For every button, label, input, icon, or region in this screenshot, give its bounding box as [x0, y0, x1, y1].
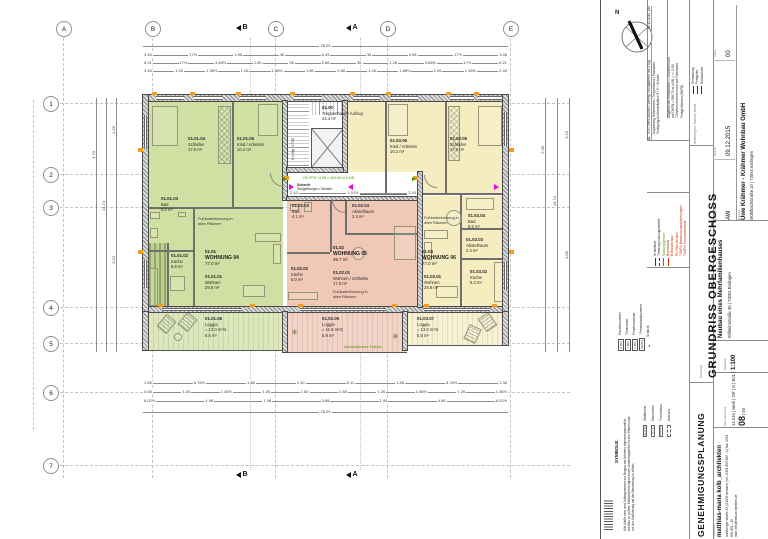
symbol-tag: F B01	[632, 339, 638, 351]
dim-value: 14.74	[102, 200, 106, 212]
wall	[403, 312, 407, 350]
dim-symbol	[693, 86, 694, 94]
window	[240, 96, 266, 101]
scale-label: Maßstab	[723, 358, 727, 370]
room-label-kind-06: 01.03.06Kind / Arbeiten10.2 m²	[390, 138, 417, 155]
axis-label-3: 3	[43, 200, 59, 216]
axis-label-2: 2	[43, 167, 59, 183]
dim-line	[106, 98, 107, 352]
dim-row: 4.081.261.38½1.261.802.881.261.88½1.261.…	[143, 392, 508, 394]
dim-row: 6.02½4.981.985.881.984.986.02½	[143, 401, 508, 403]
architect-address: radeberger straße 43 | 01099 dresden | t…	[725, 429, 733, 537]
dim-row: 3.481.261.38½1.261.88½1.802.881.261.88½1…	[143, 71, 508, 73]
window	[478, 96, 502, 101]
bed	[478, 106, 502, 146]
partition	[345, 200, 347, 235]
partition	[167, 243, 169, 307]
section-marker-a-bottom: A	[346, 471, 358, 478]
dim-value: 3.23	[112, 255, 116, 265]
apartment-label-04: 01.01WOHNUNG 0477.0 m²	[205, 249, 239, 267]
sink	[178, 212, 186, 217]
window-marker	[492, 304, 497, 308]
drawing-title-label: Planinhalt	[699, 365, 703, 378]
frame-line	[689, 382, 713, 383]
dim-value: 3.23	[565, 130, 569, 140]
window-marker	[290, 92, 295, 96]
title-block: N 01 TEXTURPLANUNG: Verring. Hochparterr…	[600, 0, 768, 539]
frame-line	[689, 145, 713, 146]
room-label-wohnen-04: 01.01.01Wohnen29.6 m²	[205, 274, 222, 291]
partition	[385, 101, 387, 193]
bed	[388, 104, 408, 136]
axis-label-d: D	[380, 21, 396, 37]
window	[156, 96, 184, 101]
window-marker	[138, 250, 143, 254]
loggia-door	[424, 308, 490, 312]
window-marker	[298, 304, 303, 308]
architect-block: Architekt matthias-maria kolb_architekte…	[713, 429, 768, 537]
window-marker	[158, 304, 163, 308]
bath-fixture	[150, 212, 160, 219]
kitchen-counter	[149, 268, 158, 306]
shaft-triangle-icon	[289, 184, 294, 190]
apartment-label-05: 01.02WOHNUNG 0539.7 m²	[333, 245, 367, 263]
demolition-swatch	[667, 425, 672, 437]
window-marker	[446, 92, 451, 96]
room-label-bad-05: 01.02.03Bad4.1 m²	[292, 203, 309, 220]
marks-legend: Vermaßung Fertigkote Rohbaukote	[691, 56, 713, 94]
hatch-legend: Stahlbeton Mauerwerk Trockenbau Abbruch	[641, 383, 679, 437]
frame-line	[647, 140, 689, 141]
wall	[418, 172, 422, 307]
scale-value: 1:100	[731, 342, 737, 370]
dim-value: 4.73	[92, 150, 96, 160]
section-arrow-icon	[236, 472, 241, 478]
wall	[503, 312, 508, 345]
room-label-abstellraum-06: 01.03.03Abstellraum2.4 m²	[466, 237, 488, 254]
red-line-symbol	[668, 258, 669, 266]
phase-title: GENEHMIGUNGSPLANUNG	[696, 413, 706, 537]
section-marker-b-bottom: B	[236, 471, 248, 478]
wall	[287, 197, 418, 200]
partition	[193, 209, 195, 307]
window	[354, 96, 380, 101]
site-line	[33, 100, 34, 430]
room-label-loggia-04: 01.01.06Loggia= 13.0 m²/26.5 m²	[205, 316, 226, 338]
client-address: Mühlbachstraße 10 | 73054 Eislingen	[749, 5, 754, 220]
window-marker	[250, 304, 255, 308]
level-mark-icon	[283, 177, 287, 181]
disclaimer-block: Alle Maße sind vom Auftragnehmer vor Beg…	[623, 383, 639, 531]
shaft-triangle-icon	[348, 184, 353, 190]
stair-count-note: 9 x Stg. 17/28	[291, 138, 295, 160]
revision-header: Änderungen | Datum | Name	[693, 96, 711, 144]
axis-label-5: 5	[43, 336, 59, 352]
bath-fixture	[150, 228, 158, 238]
room-label-bad-04: 01.01.03Bad5.0 m²	[161, 196, 178, 213]
symbol-tag: H B01	[618, 339, 624, 351]
section-marker-a-top: A	[346, 24, 358, 31]
index-cell: Index00	[713, 5, 735, 61]
date-cell: Datum09.12.2015	[713, 61, 735, 160]
dim-row: 6.0117½3.68½1.80365.88361.263.68½17½6.21	[143, 63, 508, 65]
apartment-label-06: 01.03WOHNUNG 0677.0 m²	[422, 249, 456, 267]
revision-block: 01 TEXTURPLANUNG: Verring. Hochparterre …	[647, 6, 667, 140]
stairwell-label: 01.00Treppenhaus / Aufzug24.4 m²	[322, 105, 363, 122]
window-marker	[236, 92, 241, 96]
axis-label-c: C	[268, 21, 284, 37]
room-label-abstellraum-05: 01.02.04Abstellraum2.4 m²	[352, 203, 374, 220]
plan-code-block: Plan-Kennung 14.016 | werk | GP | G | E0…	[713, 374, 768, 426]
level-mark-icon	[412, 177, 416, 181]
drywall-hatch-swatch	[659, 425, 664, 437]
room-label-schlafen-06: 01.03.05Schlafen17.0 m²	[450, 136, 467, 153]
symbol-box-legend: H B01Haustürnummer T B01Türnummer F B01F…	[617, 263, 657, 351]
axis-label-4: 4	[43, 300, 59, 316]
table	[243, 285, 265, 297]
axis-label-a: A	[56, 21, 72, 37]
wall	[143, 312, 148, 350]
sofa	[273, 244, 281, 264]
shaft-label: SchachtSteigleitungen / Medien	[297, 183, 332, 192]
window-marker	[386, 92, 391, 96]
shaft-triangle-icon	[494, 184, 499, 190]
shaft-symbol: ▲	[647, 341, 651, 351]
kitchen-counter	[288, 292, 318, 300]
dim-line	[569, 98, 570, 352]
dim-line	[545, 98, 546, 352]
floor-plan-sheet: A B C D E 1 2 3 4 5 6 7 B A B A 28.29 3.…	[0, 0, 768, 539]
plot-stamp	[604, 500, 613, 530]
room-label-kueche-06: 01.03.02Küche5.3 m²	[470, 269, 487, 286]
loggia-door	[162, 308, 242, 312]
architect-label: Architekt	[713, 429, 716, 537]
room-label-kueche-05: 01.02.02Küche5.0 m²	[291, 266, 308, 283]
window-marker	[509, 148, 514, 152]
frame-line	[713, 372, 768, 373]
architect-name: matthias-maria kolb_architekten	[717, 429, 723, 537]
room-label-kueche-04: 01.01.02Küche8.6 m²	[171, 253, 188, 270]
dim-row: 3.4817½4.98366.43364.9817½3.48	[143, 55, 508, 57]
window-marker	[424, 304, 429, 308]
sofa	[255, 233, 281, 242]
dim-line	[557, 98, 558, 352]
window	[194, 96, 222, 101]
window-marker	[509, 250, 514, 254]
axis-label-7: 7	[43, 458, 59, 474]
loggia-door	[300, 308, 386, 312]
project-block: Projekt Neubau eines Mehrfamilienhauses …	[713, 222, 768, 338]
section-arrow-icon	[346, 472, 351, 478]
wall	[287, 168, 343, 172]
room-label-schlafen-04: 01.01.04Schlafen17.0 m²	[188, 136, 205, 153]
room-label-bad-06: 01.03.04Bad5.5 m²	[468, 213, 485, 230]
dim-value: 14.74	[553, 195, 557, 207]
level-note: OK FFB +4.88 = 343.63 m ü.NN	[303, 176, 354, 180]
dim-line	[116, 98, 117, 352]
masonry-hatch-swatch	[651, 425, 656, 437]
section-arrow-icon	[346, 25, 351, 31]
floor-heating-note: Fußbodenheizung in allen Räumen	[333, 290, 369, 299]
window	[504, 112, 508, 146]
client-block: gezeichnetAW Datum09.12.2015 Index00 Bau…	[713, 5, 768, 220]
frame-line	[713, 220, 768, 221]
table	[170, 276, 185, 291]
bed	[258, 104, 278, 136]
frame-line	[713, 427, 768, 428]
partition	[460, 195, 462, 307]
window-marker	[138, 148, 143, 152]
axis-line-a	[63, 38, 64, 478]
window	[144, 115, 148, 149]
bathtub	[466, 198, 494, 210]
dim-line	[96, 98, 97, 352]
elevator-shaft	[311, 128, 344, 168]
frame-line	[713, 340, 768, 341]
height-note-block: Angaben mit Höhenkoten +/- beziehen sich…	[667, 6, 689, 118]
room-label-loggia-05: 01.02.05Loggia= 11.8 m²/25.9 m²	[322, 316, 343, 338]
window-marker	[350, 92, 355, 96]
level-symbol	[697, 86, 698, 94]
project-name: Neubau eines Mehrfamilienhauses	[718, 222, 724, 338]
room-label-wohnen-06: 01.03.01Wohnen29.6 m²	[424, 274, 441, 291]
room-label-kind-04: 01.01.05Kind / Arbeiten10.2 m²	[237, 136, 264, 153]
wall	[283, 312, 287, 352]
partition	[148, 250, 193, 252]
window	[390, 96, 418, 101]
scale-block: Maßstab 1:100	[713, 342, 768, 370]
drawing-title: GRUNDRISS OBERGESCHOSS	[707, 148, 719, 378]
axis-line-e	[510, 38, 511, 478]
client-name: Uwe Krähmer - Krähmer Wohnbau GmbH	[741, 5, 747, 220]
kitchen-counter	[494, 262, 503, 302]
window-marker	[392, 304, 397, 308]
dim-value: 4.86	[565, 250, 569, 260]
section-arrow-icon	[236, 25, 241, 31]
dim-row: 28.29	[143, 412, 508, 414]
architect-mail: mail: info@mm-architekten.de	[734, 429, 738, 537]
axis-label-b: B	[145, 21, 161, 37]
axis-line-7	[50, 465, 570, 466]
plan-code-label: Plan-Kennung	[723, 407, 727, 426]
wardrobe	[218, 106, 231, 164]
level-symbol	[701, 86, 702, 94]
phase-block: GENEHMIGUNGSPLANUNG	[689, 387, 713, 537]
axis-label-6: 6	[43, 385, 59, 401]
partition	[445, 101, 447, 193]
concrete-hatch-swatch	[643, 425, 648, 437]
section-marker-b-top: B	[236, 24, 248, 31]
room-label-loggia-06: 01.03.07Loggia= 13.0 m²/26.5 m²	[417, 316, 438, 338]
symbol-tag: FB B01	[639, 338, 645, 351]
partition	[460, 258, 503, 260]
partition	[232, 101, 234, 207]
bed	[394, 226, 416, 260]
dim-value: 2.39	[541, 145, 545, 155]
dim-value: 1.26	[112, 125, 116, 135]
drawing-title-block: Planinhalt GRUNDRISS OBERGESCHOSS	[689, 148, 713, 378]
axis-label-1: 1	[43, 96, 59, 112]
symbols-header: SYMBOLE:	[605, 435, 617, 463]
partition	[287, 252, 330, 254]
plant-icon	[392, 333, 399, 341]
window	[504, 262, 508, 290]
green-line-symbol	[663, 258, 664, 266]
dashed-line-symbol	[659, 258, 660, 266]
window	[144, 260, 148, 288]
wardrobe	[448, 106, 460, 161]
axis-label-e: E	[503, 21, 519, 37]
window	[450, 96, 474, 101]
symbol-tag: T B01	[625, 339, 631, 351]
dim-row: 1.886.78½1.882.308.111.886.78½1.38	[143, 383, 508, 385]
frame-line	[647, 192, 689, 193]
window-marker	[152, 92, 157, 96]
line-legend: Schnittlinie Trennung Nutzungseinheit Nu…	[653, 194, 687, 266]
dim-row-corridor: 2.431.01½2.43	[289, 193, 417, 195]
window-marker	[190, 92, 195, 96]
room-label-wohnen-schlafen-05: 01.02.01Wohnen / Schlafen17.5 m²	[333, 270, 368, 287]
sheet-number: 08	[737, 416, 747, 426]
bed	[152, 106, 178, 146]
loggia-table	[174, 333, 182, 341]
downpipe-note: durchlaufendes Fallrohr	[344, 345, 382, 349]
plant-icon	[291, 329, 298, 337]
floor-heating-note: Fußbodenheizung in allen Räumen	[198, 217, 234, 226]
sofa	[424, 230, 448, 239]
north-label: N	[615, 10, 619, 16]
dim-row: 28.29	[143, 46, 508, 48]
window-marker	[474, 92, 479, 96]
partition	[330, 200, 332, 252]
project-address: Wilhelmstraße 36 | 73054 Eislingen	[727, 222, 732, 338]
floor-heating-note: Fußbodenheizung in allen Räumen	[424, 216, 460, 225]
window	[294, 96, 322, 101]
